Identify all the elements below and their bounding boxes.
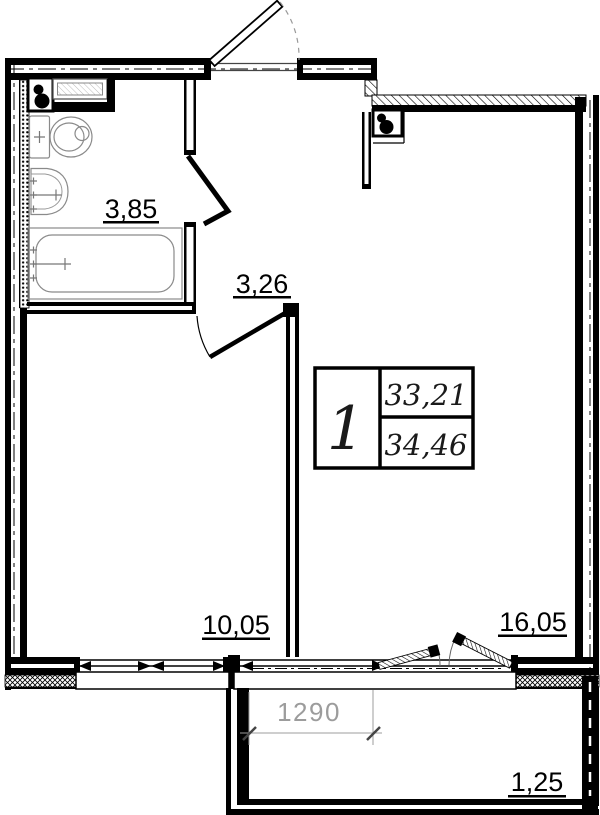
flat-number: 1	[327, 394, 365, 464]
area-label-room-main: 16,05	[499, 607, 567, 637]
hatched-wall	[372, 95, 586, 106]
area-label-room-left: 10,05	[202, 610, 270, 640]
background	[0, 0, 600, 815]
plumbing-stack-icon	[28, 78, 53, 111]
floor-plan: 1290	[0, 0, 600, 815]
floor-plan-drawing: 1290	[0, 0, 600, 815]
window-sill	[76, 672, 229, 689]
window-sill	[234, 672, 516, 689]
summary-table: 1 33,21 34,46	[315, 368, 473, 468]
vent-shaft	[53, 79, 115, 112]
area-label-balcony: 1,25	[511, 767, 564, 797]
area-label-bathroom: 3,85	[105, 194, 158, 224]
dimension-text: 1290	[277, 697, 341, 727]
living-area-value: 33,21	[384, 378, 467, 412]
total-area-value: 34,46	[384, 428, 467, 462]
area-label-hallway: 3,26	[236, 269, 289, 299]
